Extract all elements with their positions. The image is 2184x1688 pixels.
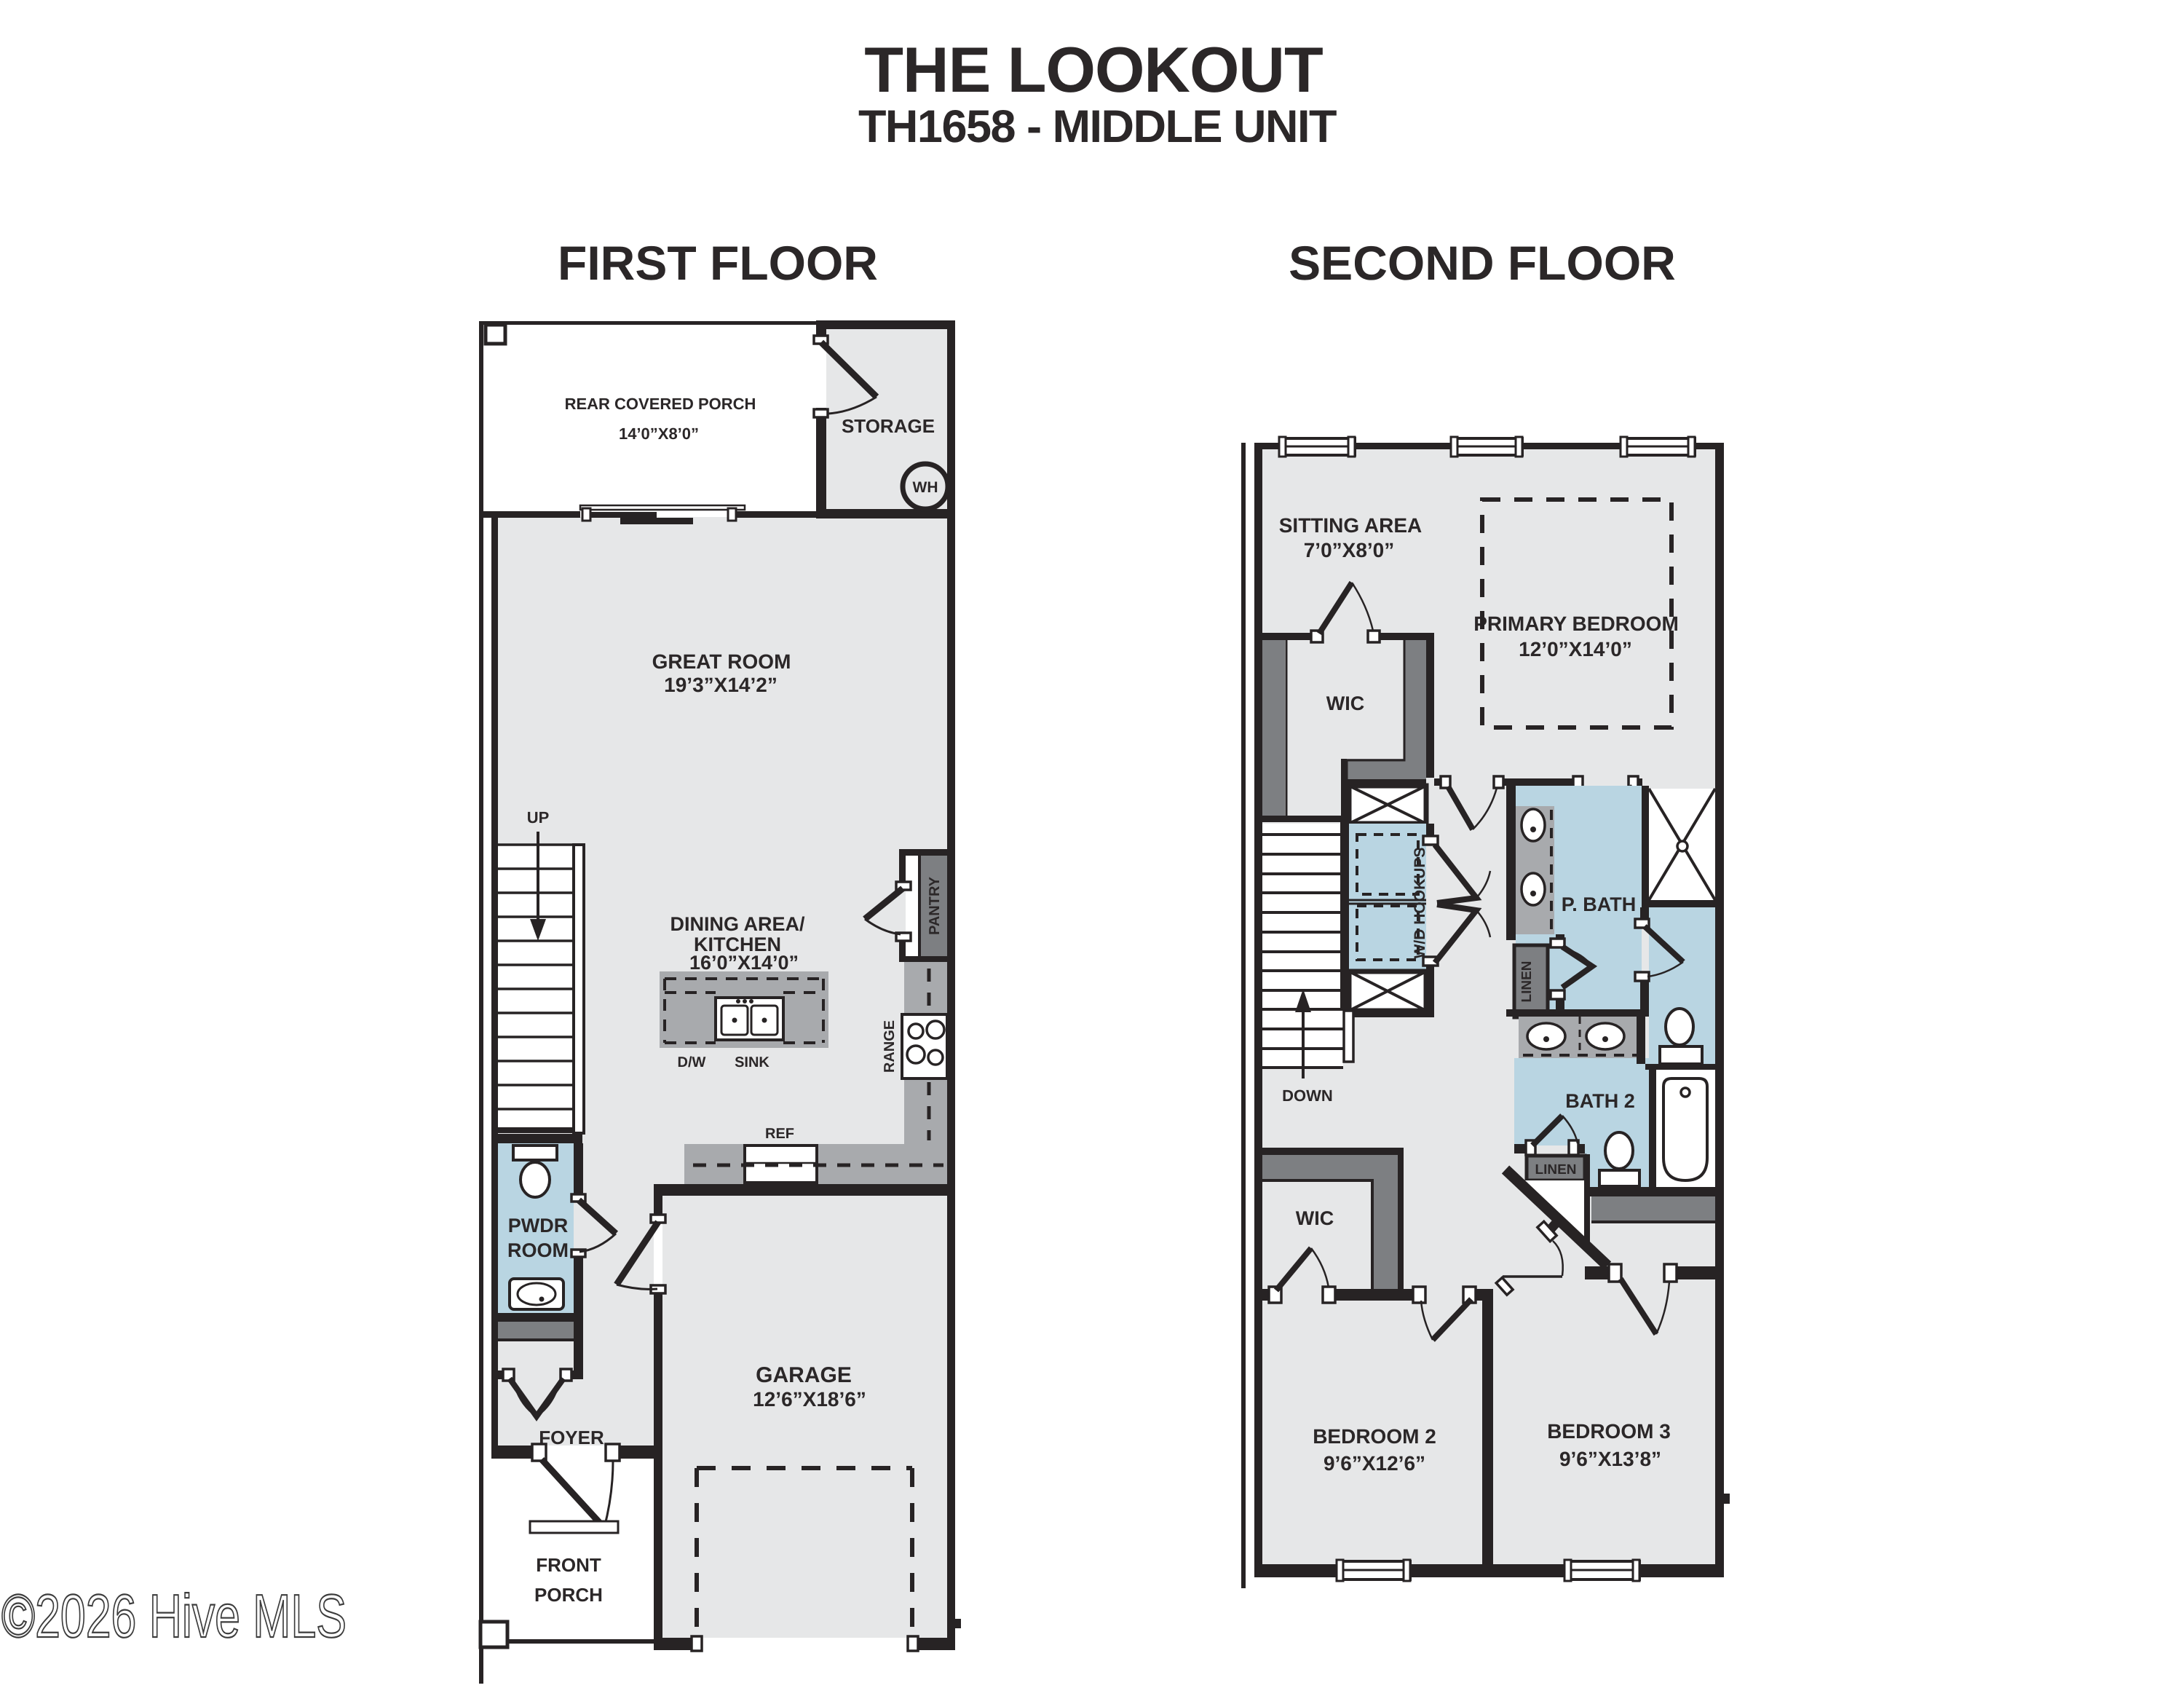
svg-text:SINK: SINK [735,1054,769,1070]
svg-text:PANTRY: PANTRY [927,876,943,935]
svg-text:BATH 2: BATH 2 [1565,1090,1635,1112]
svg-text:12’6”X18’6”: 12’6”X18’6” [753,1388,866,1411]
svg-text:REAR COVERED PORCH: REAR COVERED PORCH [565,395,756,413]
svg-text:WH: WH [913,479,938,496]
svg-text:W/D HOOKUPS: W/D HOOKUPS [1412,848,1428,959]
svg-text:16’0”X14’0”: 16’0”X14’0” [689,952,799,974]
svg-text:7’0”X8’0”: 7’0”X8’0” [1304,539,1395,561]
svg-text:STORAGE: STORAGE [842,415,935,437]
svg-text:P. BATH: P. BATH [1562,894,1637,915]
svg-text:REF: REF [765,1126,794,1142]
svg-text:LINEN: LINEN [1519,961,1535,1003]
svg-text:PRIMARY BEDROOM: PRIMARY BEDROOM [1473,612,1679,635]
svg-text:19’3”X14’2”: 19’3”X14’2” [664,674,778,696]
svg-text:14’0”X8’0”: 14’0”X8’0” [619,425,699,443]
svg-text:WIC: WIC [1296,1207,1334,1229]
svg-text:SECOND FLOOR: SECOND FLOOR [1289,236,1676,290]
svg-text:BEDROOM 2: BEDROOM 2 [1313,1425,1436,1448]
svg-text:SITTING AREA: SITTING AREA [1279,514,1423,537]
svg-text:9’6”X13’8”: 9’6”X13’8” [1559,1448,1661,1470]
svg-text:ROOM: ROOM [507,1239,569,1261]
svg-text:DINING AREA/: DINING AREA/ [670,913,805,935]
svg-text:WIC: WIC [1326,693,1364,714]
svg-text:TH1658 - MIDDLE UNIT: TH1658 - MIDDLE UNIT [858,101,1337,152]
svg-text:12’0”X14’0”: 12’0”X14’0” [1519,638,1632,660]
svg-text:UP: UP [527,808,550,827]
svg-text:9’6”X12’6”: 9’6”X12’6” [1324,1452,1425,1475]
svg-text:GREAT ROOM: GREAT ROOM [652,650,791,673]
svg-text:RANGE: RANGE [882,1020,898,1073]
svg-text:PWDR: PWDR [508,1215,569,1237]
svg-text:FIRST FLOOR: FIRST FLOOR [558,236,878,290]
svg-text:FOYER: FOYER [539,1427,604,1448]
svg-text:©2026 Hive MLS: ©2026 Hive MLS [1,1582,347,1650]
svg-text:GARAGE: GARAGE [756,1363,852,1387]
svg-text:D/W: D/W [678,1054,706,1070]
svg-text:DOWN: DOWN [1282,1086,1333,1105]
svg-text:BEDROOM 3: BEDROOM 3 [1547,1420,1671,1443]
svg-text:PORCH: PORCH [534,1584,603,1606]
svg-text:FRONT: FRONT [536,1554,601,1576]
svg-text:LINEN: LINEN [1535,1162,1577,1178]
svg-text:THE LOOKOUT: THE LOOKOUT [864,33,1323,106]
